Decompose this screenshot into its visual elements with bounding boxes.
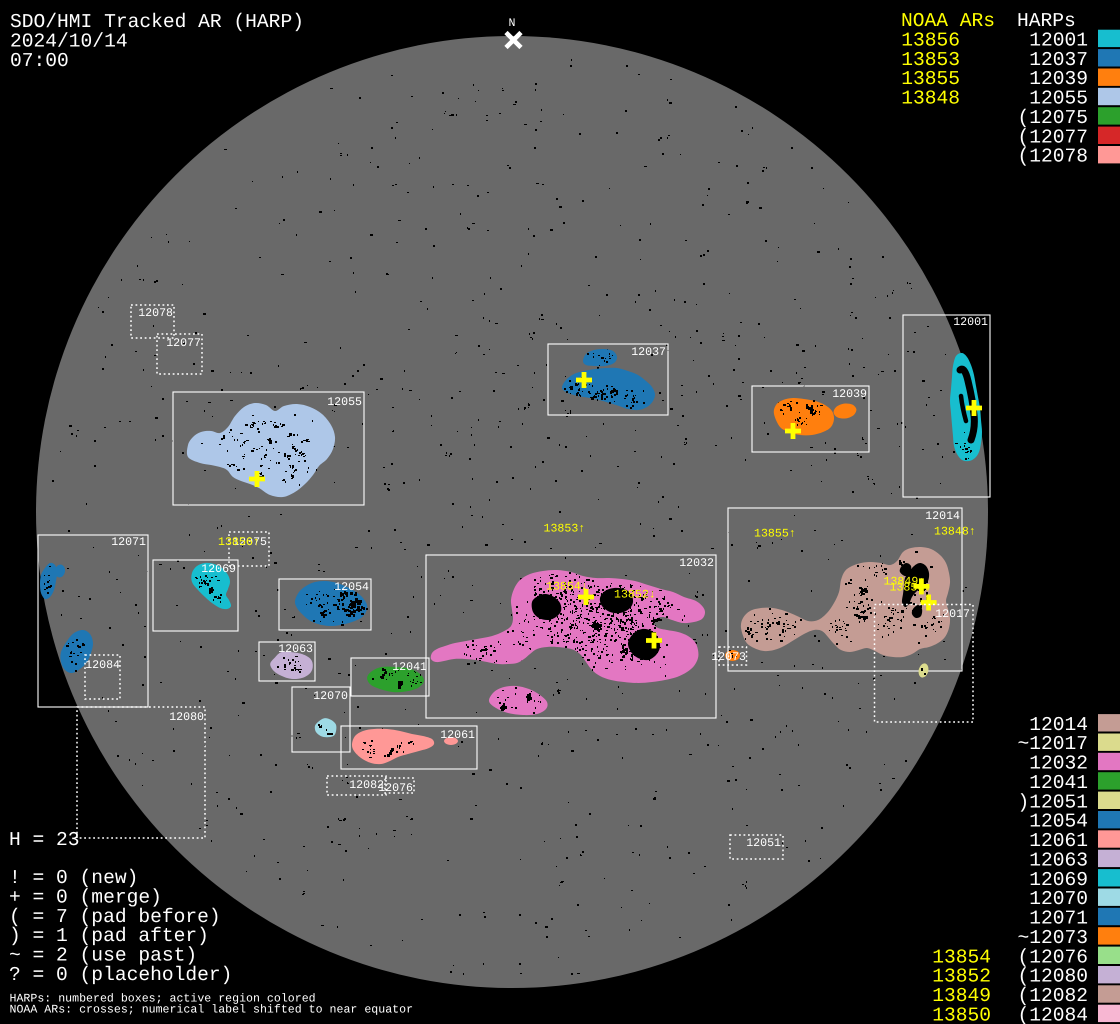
svg-text:NOAA ARs: crosses; numerical l: NOAA ARs: crosses; numerical label shift… [10,1004,414,1017]
svg-text:12014: 12014 [925,510,960,523]
svg-text:13852↓: 13852↓ [614,589,656,602]
svg-text:13848: 13848 [901,88,960,110]
svg-text:H = 23: H = 23 [9,829,80,851]
svg-text:12077: 12077 [166,337,201,350]
svg-text:12078: 12078 [138,307,173,320]
svg-text:13855↑: 13855↑ [754,528,796,541]
svg-text:12017: 12017 [935,608,970,621]
svg-text:12084: 12084 [85,659,120,672]
svg-text:? = 0 (placeholder): ? = 0 (placeholder) [9,964,232,986]
svg-text:07:00: 07:00 [10,50,69,72]
svg-text:12001: 12001 [953,316,988,329]
svg-text:13850↓: 13850↓ [890,582,932,595]
svg-text:12054: 12054 [334,581,369,594]
svg-text:12041: 12041 [392,661,427,674]
svg-text:12055: 12055 [327,396,362,409]
svg-text:(12084: (12084 [1017,1004,1088,1024]
svg-text:13854↓: 13854↓ [546,581,588,594]
svg-text:12071: 12071 [111,536,146,549]
svg-text:(12078: (12078 [1017,146,1088,168]
svg-text:12039: 12039 [832,388,867,401]
svg-text:12051: 12051 [746,837,781,850]
svg-text:N: N [509,17,516,30]
svg-text:12070: 12070 [313,690,348,703]
svg-text:13853↑: 13853↑ [544,523,586,536]
svg-text:12073: 12073 [711,651,746,664]
svg-text:12063: 12063 [278,643,313,656]
svg-text:12037: 12037 [631,346,666,359]
svg-text:13848↑: 13848↑ [934,526,976,539]
svg-text:12076: 12076 [378,782,413,795]
svg-text:13856↑: 13856↑ [218,536,260,549]
svg-text:12069: 12069 [201,563,236,576]
svg-text:12080: 12080 [169,711,204,724]
svg-text:12032: 12032 [679,557,714,570]
svg-text:12061: 12061 [440,729,475,742]
svg-text:13850: 13850 [932,1004,991,1024]
